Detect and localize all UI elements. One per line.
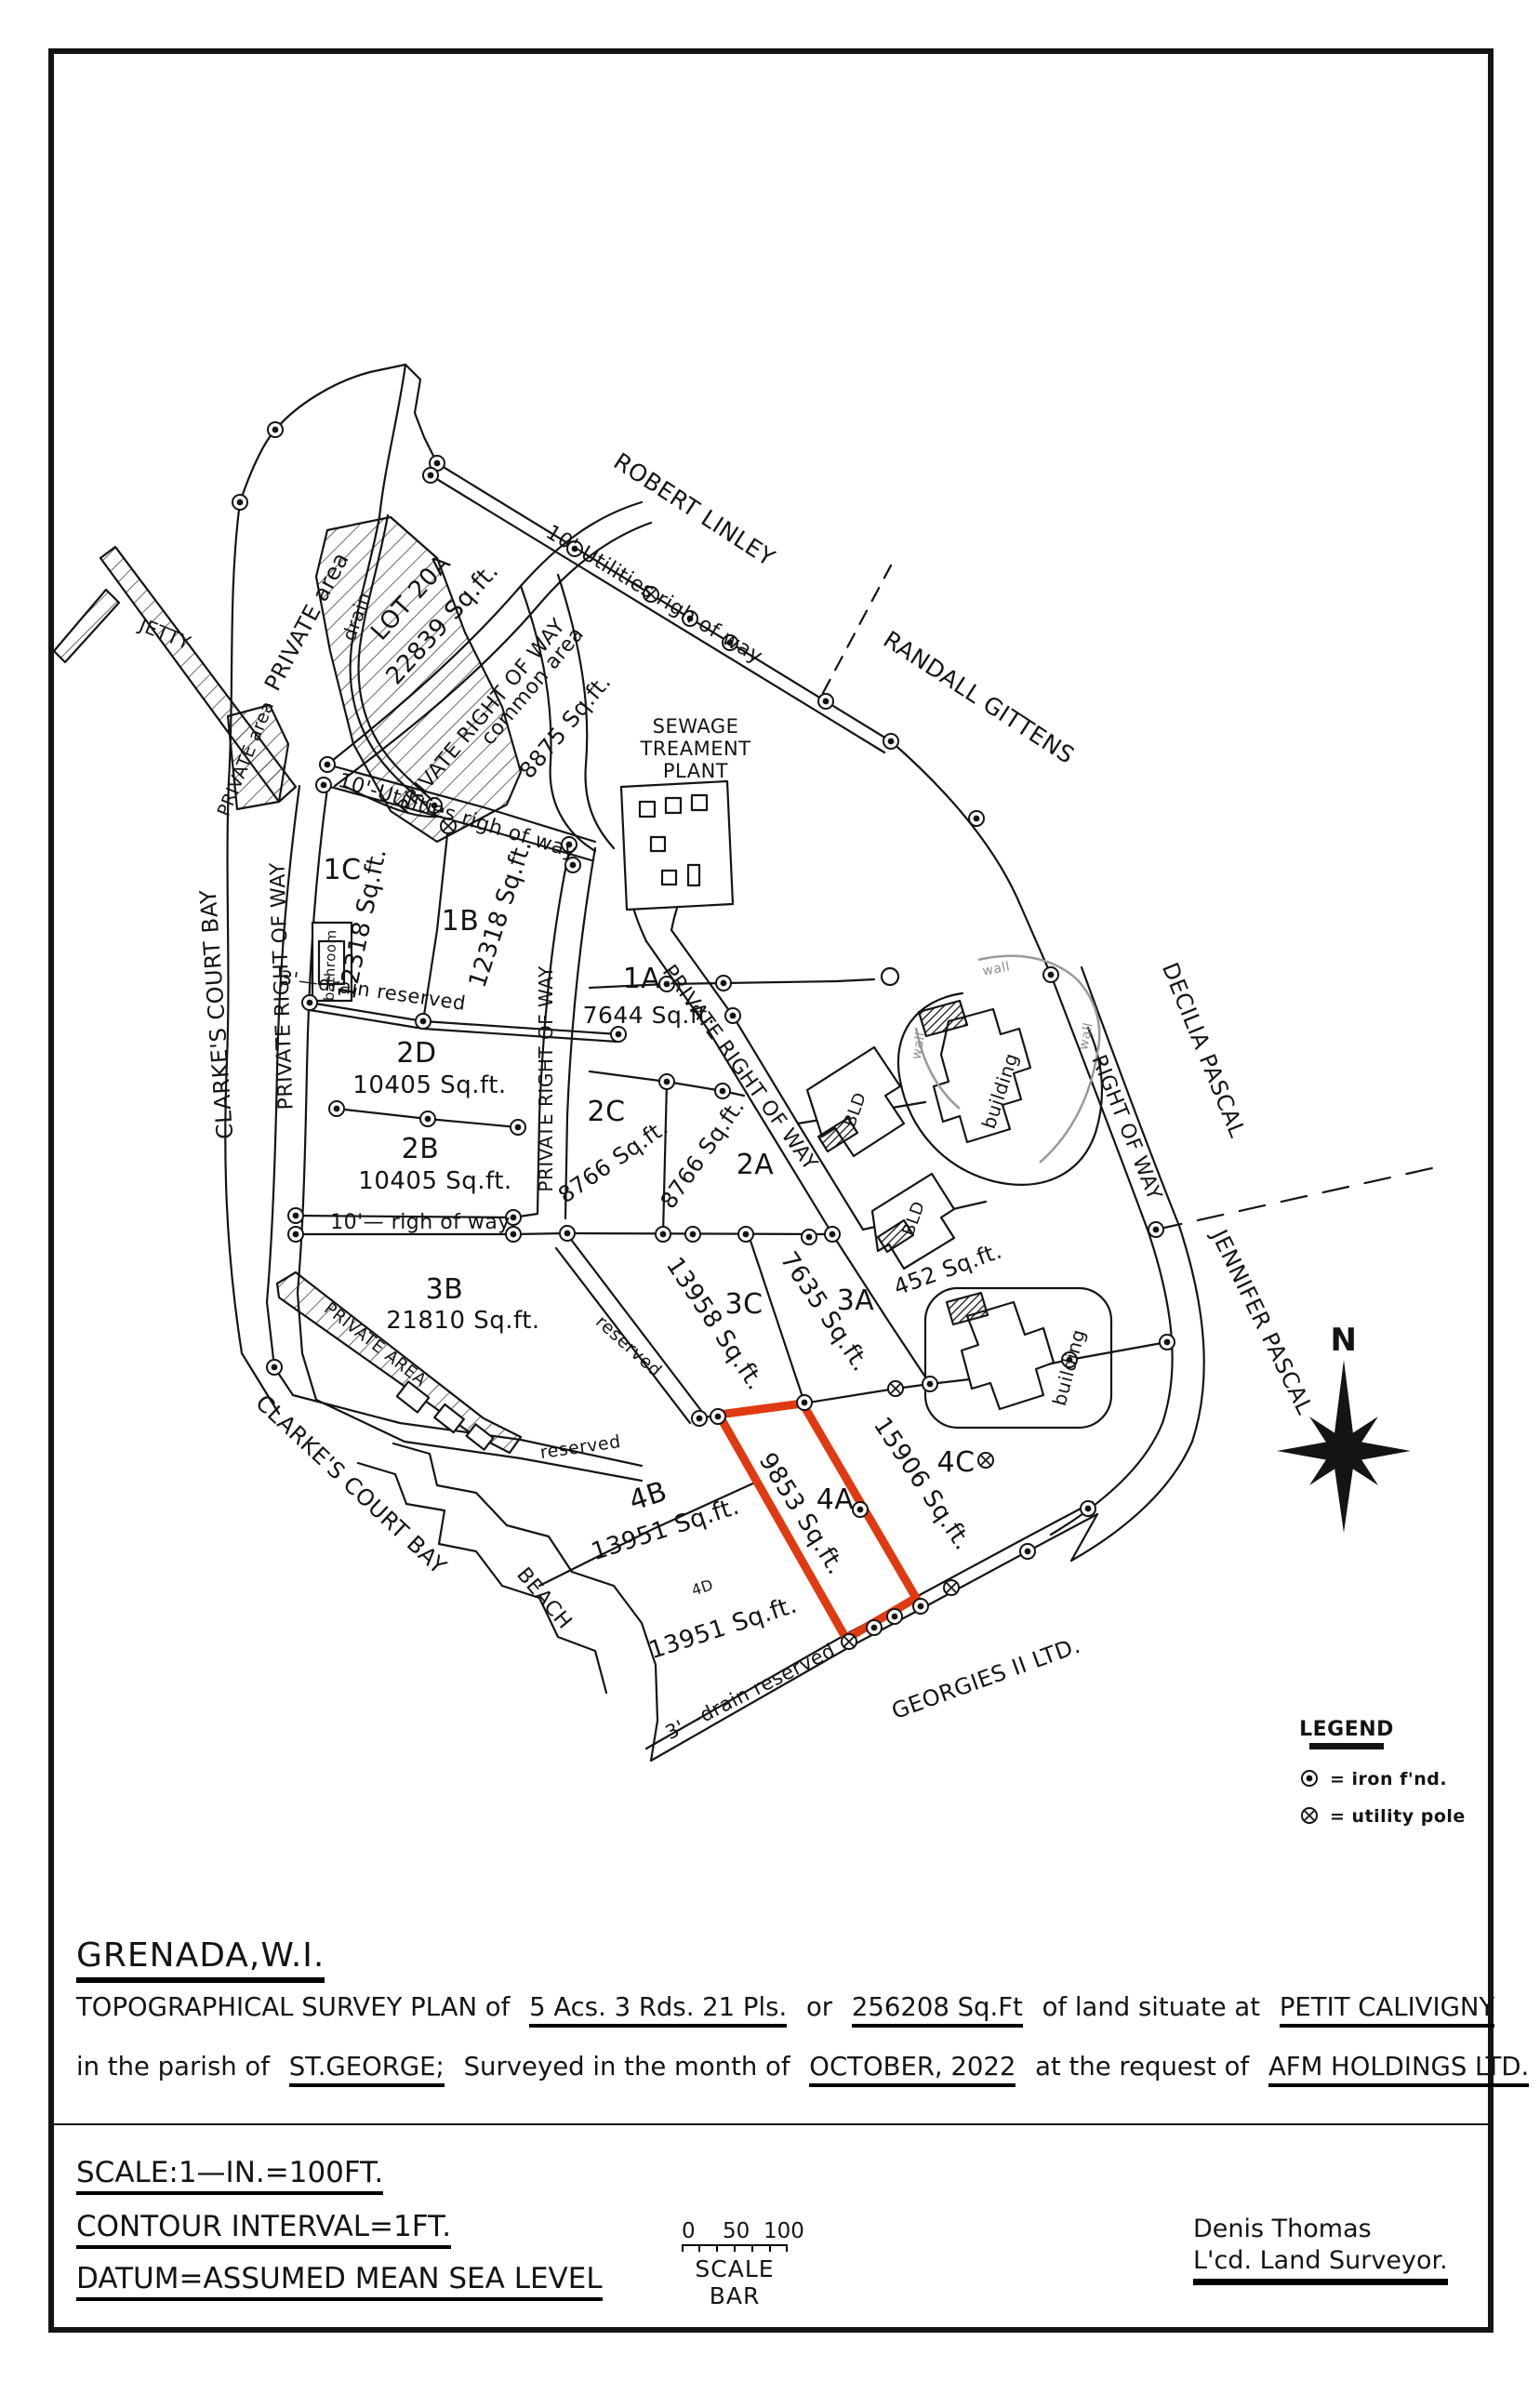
label-2b-area: 10405 Sq.ft. bbox=[358, 1167, 511, 1195]
label-4d-area: 13951 Sq.ft. bbox=[645, 1591, 801, 1666]
datum-note: DATUM=ASSUMED MEAN SEA LEVEL bbox=[76, 2262, 614, 2301]
label-wall-1: wall bbox=[981, 960, 1011, 979]
line1-place: PETIT CALIVIGNY bbox=[1280, 1992, 1494, 2028]
legend-underline bbox=[1309, 1743, 1384, 1749]
label-sewage-2: TREAMENT bbox=[640, 738, 751, 760]
scale-bar-label: SCALE BAR bbox=[682, 2255, 788, 2309]
label-4c-area: 15906 Sq.ft. bbox=[868, 1413, 976, 1556]
line2-mid: Surveyed in the month of bbox=[464, 2052, 790, 2082]
label-3c-area: 13958 Sq.ft. bbox=[660, 1253, 769, 1396]
legend-title: LEGEND bbox=[1299, 1718, 1394, 1741]
utility-pole-icon bbox=[1302, 1808, 1317, 1823]
legend-iron-label: = iron f'nd. bbox=[1330, 1769, 1447, 1789]
line1-area: 5 Acs. 3 Rds. 21 Pls. bbox=[529, 1992, 787, 2028]
line1-or: or bbox=[806, 1992, 832, 2022]
contour-note: CONTOUR INTERVAL=1FT. bbox=[76, 2210, 462, 2249]
scale-bar-100: 100 bbox=[763, 2219, 804, 2243]
line2-at: at the request of bbox=[1035, 2052, 1249, 2082]
label-beach: BEACH bbox=[511, 1563, 576, 1634]
north-label: N bbox=[1331, 1322, 1358, 1359]
north-arrow: N bbox=[1277, 1322, 1411, 1533]
label-clarkes-bay-1: CLARKE'S COURT BAY bbox=[195, 888, 239, 1140]
legend-utility-label: = utility pole bbox=[1330, 1806, 1466, 1827]
survey-plan-page: JETTY PRIVATE area PRIVATE area drain LO… bbox=[0, 0, 1540, 2381]
line2-month: OCTOBER, 2022 bbox=[809, 2052, 1016, 2087]
line2-client: AFM HOLDINGS LTD. bbox=[1268, 2052, 1529, 2087]
label-drain-reserved-2: 3'—drain reserved bbox=[662, 1639, 839, 1744]
label-1c: 1C bbox=[323, 854, 361, 886]
scale-bar-ruler bbox=[682, 2244, 788, 2254]
label-georges: GEORGIES II LTD. bbox=[888, 1632, 1083, 1724]
scale-bar-0: 0 bbox=[682, 2219, 696, 2243]
map-labels: JETTY PRIVATE area PRIVATE area drain LO… bbox=[135, 447, 1319, 1744]
label-4d: 4D bbox=[689, 1576, 715, 1599]
label-wall-3: wall bbox=[909, 1031, 929, 1060]
surveyor-signature: Denis Thomas L'cd. Land Surveyor. bbox=[1193, 2214, 1448, 2285]
label-building-2: building bbox=[1048, 1326, 1090, 1407]
title-line-1: TOPOGRAPHICAL SURVEY PLAN of 5 Acs. 3 Rd… bbox=[76, 1992, 1506, 2028]
sheet-frame bbox=[51, 51, 1491, 2330]
label-4b: 4B bbox=[625, 1475, 670, 1518]
datum-note-text: DATUM=ASSUMED MEAN SEA LEVEL bbox=[76, 2262, 603, 2301]
label-10-row: 10'— righ of way bbox=[330, 1211, 511, 1234]
label-jennifer: JENNIFER PASCAL bbox=[1205, 1224, 1318, 1418]
line1-mid: of land situate at bbox=[1042, 1992, 1260, 2022]
scale-note-text: SCALE:1—IN.=100FT. bbox=[76, 2156, 383, 2195]
label-prow-diag: PRIVATE RIGHT OF WAY bbox=[657, 961, 822, 1175]
label-sewage-3: PLANT bbox=[663, 760, 728, 782]
line1-prefix: TOPOGRAPHICAL SURVEY PLAN of bbox=[76, 1992, 510, 2022]
label-clarkes-bay-2: CLARKE'S COURT BAY bbox=[250, 1390, 451, 1579]
scale-bar-numbers: 0 50 100 bbox=[682, 2219, 793, 2243]
label-prow-mid: PRIVATE RIGHT OF WAY bbox=[535, 965, 557, 1191]
scale-bar-50: 50 bbox=[723, 2219, 750, 2243]
line2-prefix: in the parish of bbox=[76, 2052, 270, 2082]
label-2c: 2C bbox=[587, 1096, 625, 1128]
label-decilia: DECILIA PASCAL bbox=[1157, 959, 1251, 1141]
iron-found-icon bbox=[1302, 1771, 1317, 1786]
line2-parish: ST.GEORGE; bbox=[289, 2052, 445, 2087]
label-3b: 3B bbox=[426, 1273, 464, 1306]
label-robert-linley: ROBERT LINLEY bbox=[609, 447, 780, 572]
label-2a: 2A bbox=[737, 1149, 775, 1181]
label-1a: 1A bbox=[623, 963, 661, 995]
region-title-text: GRENADA,W.I. bbox=[76, 1936, 325, 1983]
label-3b-area: 21810 Sq.ft. bbox=[386, 1307, 539, 1335]
label-3c: 3C bbox=[724, 1288, 763, 1321]
scale-bar: 0 50 100 SCALE BAR bbox=[682, 2219, 793, 2309]
line1-sqft: 256208 Sq.Ft bbox=[852, 1992, 1023, 2028]
label-4c: 4C bbox=[936, 1446, 975, 1479]
label-1b: 1B bbox=[442, 905, 480, 938]
surveyor-name: Denis Thomas bbox=[1193, 2214, 1448, 2245]
title-line-2: in the parish of ST.GEORGE; Surveyed in … bbox=[76, 2052, 1540, 2087]
label-wall-2: wall bbox=[1076, 1021, 1096, 1051]
label-reserved-1: reserved bbox=[591, 1311, 666, 1381]
region-title: GRENADA,W.I. bbox=[76, 1936, 336, 1983]
label-randall-gittens: RANDALL GITTENS bbox=[879, 626, 1080, 769]
contour-note-text: CONTOUR INTERVAL=1FT. bbox=[76, 2210, 451, 2249]
label-4a: 4A bbox=[816, 1483, 855, 1516]
label-3a: 3A bbox=[837, 1284, 875, 1317]
label-2b: 2B bbox=[402, 1133, 440, 1165]
label-2d-area: 10405 Sq.ft. bbox=[352, 1071, 506, 1099]
label-right-of-way: RIGHT OF WAY bbox=[1086, 1052, 1165, 1204]
surveyor-title: L'cd. Land Surveyor. bbox=[1193, 2245, 1448, 2285]
legend: LEGEND = iron f'nd. = utility pole bbox=[1299, 1718, 1466, 1827]
scale-note: SCALE:1—IN.=100FT. bbox=[76, 2156, 394, 2195]
label-2d: 2D bbox=[396, 1037, 436, 1070]
label-sewage-1: SEWAGE bbox=[653, 715, 739, 738]
